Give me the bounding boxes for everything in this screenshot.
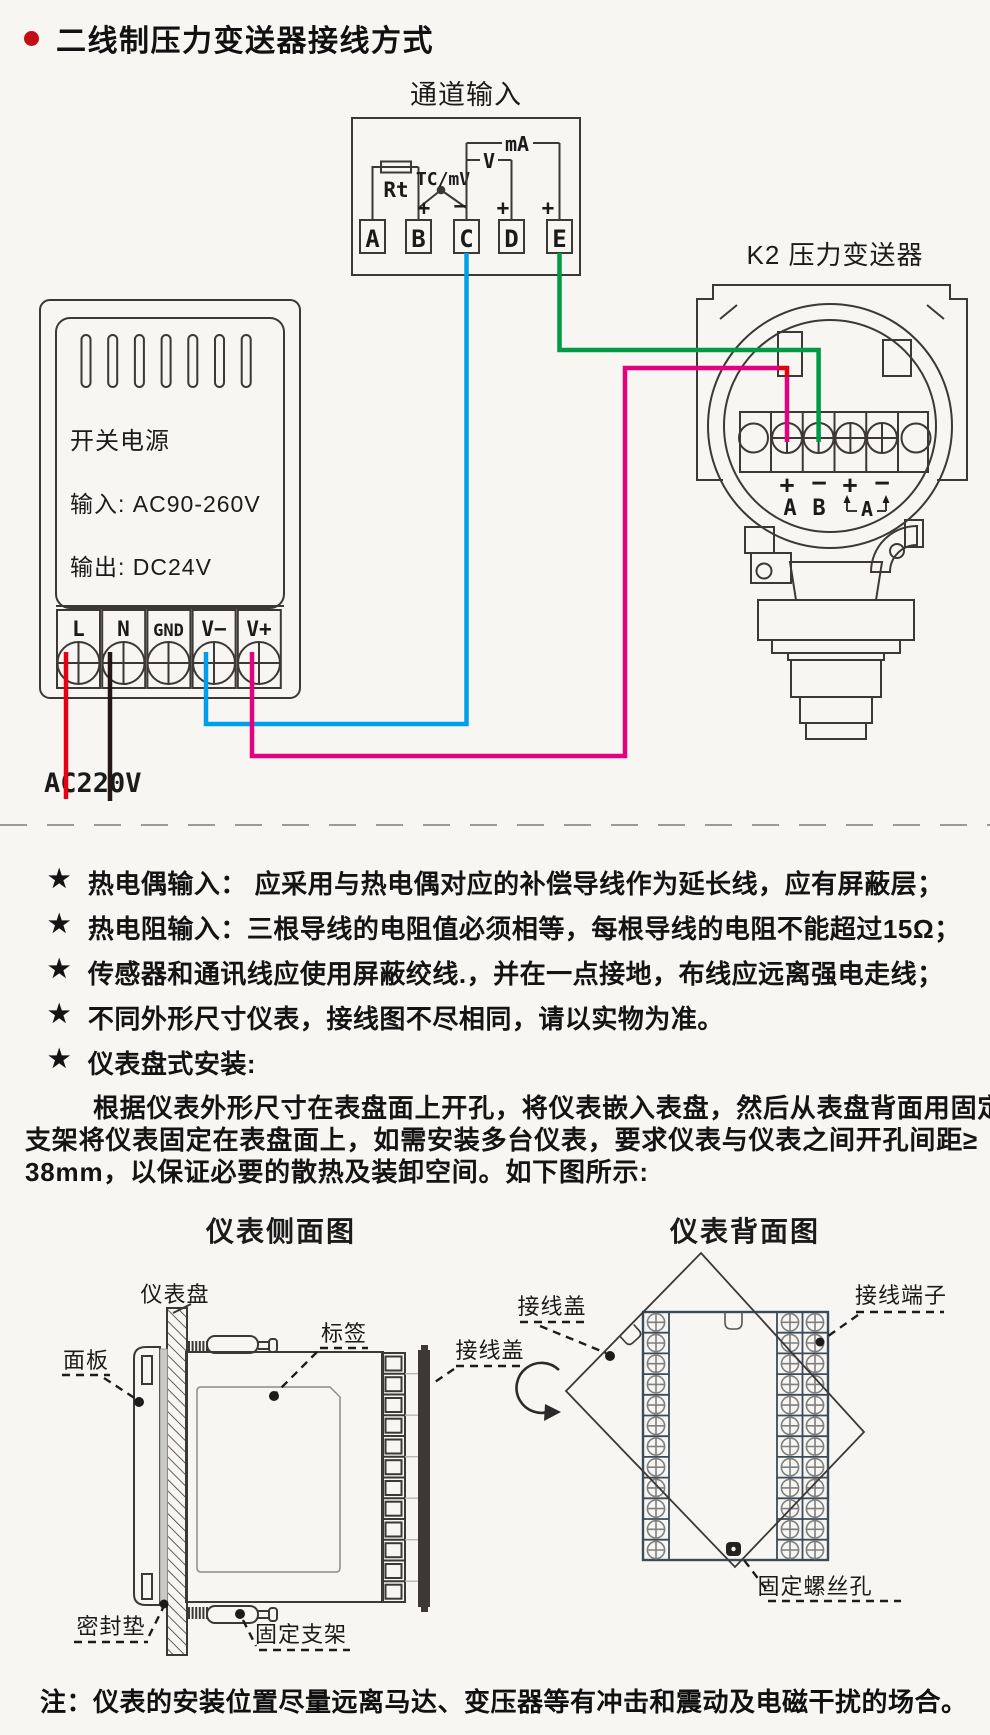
plus-d: +	[497, 196, 510, 220]
tag-label: 标签	[321, 1321, 367, 1346]
psu-terminal-gnd: GND	[153, 621, 184, 641]
label-plate	[197, 1387, 340, 1572]
terminal-a: A	[365, 225, 380, 253]
gasket-label: 密封垫	[76, 1614, 145, 1639]
ammeter-label: A	[861, 497, 873, 521]
note-1: ★热电偶输入： 应采用与热电偶对应的补偿导线作为延长线，应有屏蔽层；	[48, 864, 944, 901]
star-icon: ★	[48, 954, 71, 984]
psu-vents	[82, 335, 251, 387]
note-5: ★仪表盘式安装:	[48, 1044, 256, 1081]
terminal-cover-bar	[418, 1350, 430, 1607]
transmitter-a: A	[783, 496, 796, 521]
back-cover-dot	[605, 1351, 615, 1361]
panel-board-label: 仪表盘	[140, 1282, 209, 1307]
cover-clip	[620, 1325, 642, 1347]
wiring-diagram: A B C D E Rt TC/mV V mA + − + +	[0, 0, 990, 820]
back-cover-label: 接线盖	[517, 1294, 586, 1319]
back-view-title: 仪表背面图	[669, 1215, 820, 1248]
polarity-1: +	[779, 470, 794, 499]
side-view-title: 仪表侧面图	[205, 1215, 356, 1248]
psu-screws	[58, 642, 281, 684]
terminal-column	[382, 1345, 430, 1612]
terminal-label: 接线端子	[855, 1283, 947, 1308]
rt-label: Rt	[383, 178, 408, 202]
transmitter-body	[745, 520, 923, 739]
power-supply: L N GND V− V+	[40, 300, 300, 698]
meter-body	[186, 1352, 383, 1602]
transmitter-terminal-block	[739, 412, 931, 472]
bracket-label: 固定支架	[255, 1622, 347, 1647]
front-bezel	[134, 1347, 160, 1605]
tag-dot	[269, 1391, 279, 1401]
psu-terminal-vplus: V+	[246, 617, 271, 641]
channel-input-box: A B C D E Rt TC/mV V mA + − + +	[352, 118, 580, 275]
v-label: V	[483, 149, 495, 173]
note-2: ★热电阻输入：三根导线的电阻值必须相等，每根导线的电阻不能超过15Ω；	[48, 909, 961, 946]
polarity-3: +	[842, 470, 857, 499]
tc-label: TC/mV	[416, 169, 470, 190]
gasket	[160, 1349, 168, 1603]
top-fixing-clamp	[189, 1336, 277, 1353]
psu-terminal-l: L	[72, 617, 85, 641]
installation-diagrams: 仪表侧面图 仪表盘	[0, 1205, 990, 1675]
screw-hole-label: 固定螺丝孔	[757, 1574, 872, 1599]
back-view: 仪表背面图	[517, 1215, 947, 1601]
terminal-e: E	[552, 225, 566, 253]
side-view: 仪表侧面图 仪表盘	[62, 1215, 525, 1655]
polarity-4: −	[874, 468, 889, 497]
wire-green	[560, 253, 819, 442]
rotate-arrowhead	[544, 1404, 561, 1421]
ma-label: mA	[505, 132, 529, 156]
wire-magenta	[252, 368, 779, 756]
panel-board	[167, 1308, 187, 1655]
transmitter-b: B	[812, 496, 825, 521]
gasket-dot	[160, 1600, 169, 1609]
terminal-b: B	[411, 225, 425, 253]
psu-terminal-vminus: V−	[201, 617, 226, 641]
side-cover-label: 接线盖	[455, 1338, 524, 1363]
note-3: ★传感器和通讯线应使用屏蔽绞线.，并在一点接地，布线应远离强电走线；	[48, 954, 944, 991]
wire-blue	[206, 253, 467, 724]
paragraph-line-3: 38mm，以保证必要的散热及装卸空间。如下图所示:	[25, 1152, 649, 1189]
note-4: ★不同外形尺寸仪表，接线图不尽相同，请以实物为准。	[48, 999, 724, 1036]
star-icon: ★	[48, 999, 71, 1029]
polarity-2: −	[811, 468, 826, 497]
psu-terminal-n: N	[117, 617, 130, 641]
minus-c: −	[454, 194, 467, 218]
footnote: 注：仪表的安装位置尽量远离马达、变压器等有冲击和震动及电磁干扰的场合。	[40, 1682, 968, 1719]
terminal-c: C	[459, 225, 473, 253]
front-panel-label: 面板	[63, 1348, 109, 1373]
front-panel-dot	[134, 1397, 144, 1407]
pressure-transmitter: + − + − A B A	[697, 285, 967, 739]
terminal-dot	[816, 1338, 825, 1347]
plus-e: +	[542, 196, 555, 220]
terminal-d: D	[504, 225, 518, 253]
star-icon: ★	[48, 1044, 71, 1074]
plus-b: +	[418, 196, 431, 220]
rotate-arrow	[517, 1363, 559, 1413]
wires	[66, 253, 819, 801]
star-icon: ★	[48, 909, 71, 939]
bottom-fixing-clamp	[189, 1606, 277, 1623]
star-icon: ★	[48, 864, 71, 894]
page: 二线制压力变送器接线方式 通道输入 K2 压力变送器 开关电源 输入: AC90…	[0, 0, 990, 1735]
